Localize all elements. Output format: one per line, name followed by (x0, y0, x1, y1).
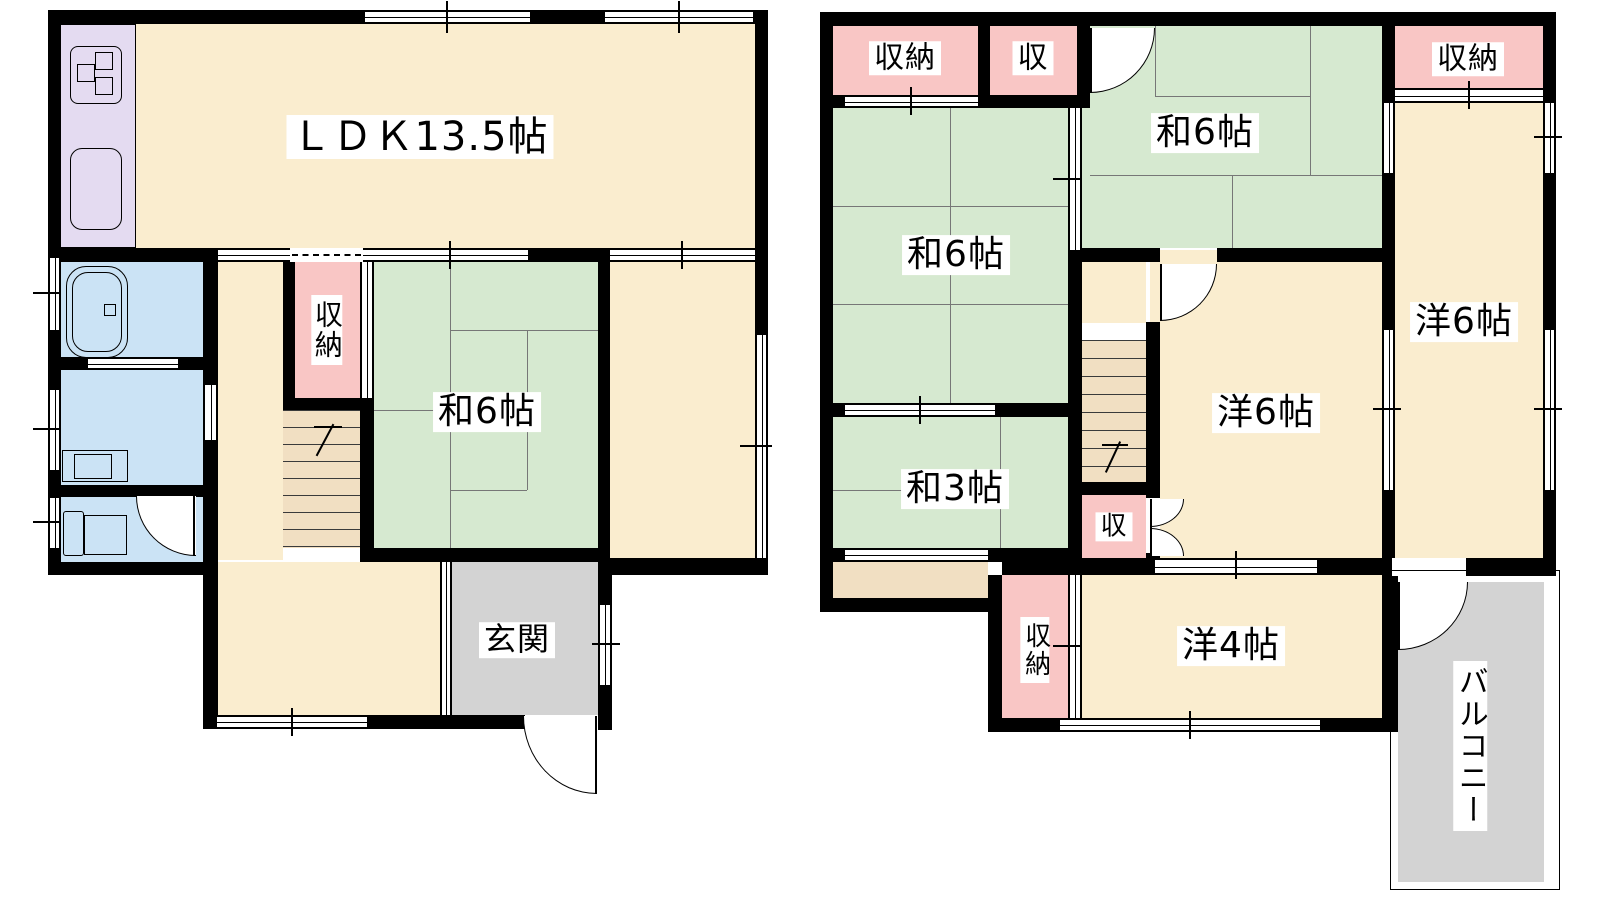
east-window-1 (1543, 103, 1556, 173)
floor-2-tick-4 (1534, 408, 1562, 410)
floor-2-tick-6 (919, 396, 921, 424)
floor-2-tick-11 (1160, 264, 1162, 321)
floor-2-wall-10 (1146, 248, 1160, 262)
toilet-bowl (84, 515, 127, 555)
closet-top-dashed-opening (290, 248, 363, 262)
floor-2-wall-4 (1077, 26, 1090, 95)
floor-2-wall-7 (1068, 250, 1082, 575)
floor-1-tick-6 (33, 292, 61, 294)
floor-2-wall-17 (833, 403, 845, 417)
floor-1-wall-12 (598, 248, 610, 575)
stairs-2f (1082, 340, 1146, 482)
bath-door (88, 357, 178, 370)
label-closet-2f-ne: 収納 (1432, 42, 1504, 76)
floor-2-wall-22 (1002, 562, 1082, 575)
wash-basin (74, 454, 112, 479)
floor-1-wall-9 (283, 248, 295, 403)
room-east-1f (610, 262, 755, 558)
floor-2-wall-23 (1082, 558, 1146, 575)
label-balcony: バルコニー (1453, 661, 1487, 831)
floor-2-wall-20 (820, 598, 1002, 612)
floor-2-tick-1 (1468, 81, 1470, 109)
floor-1-tick-2 (740, 445, 772, 447)
floor-1-tick-4 (681, 241, 683, 269)
center-window-1 (1382, 103, 1395, 173)
floor-1-tick-11 (595, 716, 597, 794)
label-washitsu-1f: 和6帖 (433, 392, 541, 432)
floor-1-wall-3 (48, 248, 218, 262)
hallway-vertical (218, 262, 283, 560)
floor-1-wall-11 (360, 410, 374, 548)
closet-door-1f (360, 262, 374, 398)
floor-1-wall-14 (360, 548, 610, 562)
floor-1-tick-7 (33, 428, 61, 430)
floor-2-tatami-line-3 (1090, 175, 1382, 176)
floor-2-tatami-line-4 (1232, 176, 1233, 248)
stove-burner-2 (95, 52, 113, 70)
floor-1-wall-8 (48, 562, 218, 575)
floor-2-wall-21 (988, 575, 1002, 732)
floor-2-tatami-line-2 (1310, 26, 1311, 176)
center-window-2 (1382, 330, 1395, 490)
floor-2-tick-7 (1235, 551, 1237, 579)
floor-1-tick-3 (449, 241, 451, 269)
floor-2-wall-6 (1382, 26, 1395, 103)
floor-2-wall-11 (1146, 322, 1160, 498)
floor-1-tick-0 (446, 1, 448, 33)
floor-1-tick-12 (314, 426, 342, 428)
stove-burner-1 (77, 64, 95, 82)
stove-burner-3 (95, 77, 113, 95)
floor-2-tatami-line-0 (1155, 26, 1156, 97)
floor-2-tick-12 (1150, 499, 1152, 556)
floor-1-wall-16 (203, 562, 218, 729)
floor-2-tick-2 (1053, 178, 1081, 180)
label-youshitsu-east: 洋6帖 (1410, 302, 1518, 342)
floor-2-tatami-line-6 (833, 206, 1068, 207)
floor-2-tick-8 (1189, 711, 1191, 739)
floor-1-tick-5 (291, 708, 293, 736)
left-window-toilet (48, 498, 61, 548)
floor-2-wall-2 (1543, 12, 1556, 576)
floor-1-tick-8 (33, 521, 61, 523)
floor-2-wall-19 (988, 548, 1068, 562)
slider-washitsu3-south (845, 548, 988, 562)
toilet-tank (63, 511, 84, 556)
floor-1-tick-9 (592, 643, 620, 645)
genkan-step-line (440, 562, 452, 715)
floor-2-tick-3 (1534, 136, 1562, 138)
corridor-2f (833, 562, 988, 598)
label-closet-1f: 収納 (311, 295, 342, 365)
floor-1-tatami-line-3 (450, 490, 527, 491)
label-genkan: 玄関 (479, 622, 555, 658)
label-closet-2f-n: 収 (1013, 41, 1054, 75)
genkan-window (598, 605, 612, 685)
floor-2-tick-0 (910, 87, 912, 115)
floor-2-wall-9 (1217, 248, 1382, 262)
floor-2-wall-14 (1382, 173, 1395, 330)
floor-2-wall-16 (995, 403, 1068, 417)
floor-2-tick-10 (1090, 28, 1092, 93)
label-youshitsu-center: 洋6帖 (1212, 393, 1320, 433)
floor-2-tatami-line-1 (1155, 96, 1310, 97)
slider-ldk-washitsu (363, 248, 528, 262)
label-washitsu-3: 和3帖 (901, 469, 1009, 509)
stairs-opening-1f (285, 548, 360, 562)
bathtub-drain (104, 304, 116, 316)
floorplan-canvas: ＬＤＫ13.5帖収納和6帖玄関収納収和6帖収納和6帖洋6帖洋6帖和3帖収収納洋4… (0, 0, 1600, 900)
hallway-bottom (218, 562, 440, 715)
label-washitsu-2f-w: 和6帖 (902, 235, 1010, 275)
floor-2-wall-18 (833, 548, 845, 562)
left-window-washroom (48, 390, 61, 470)
floor-2-wall-15 (1382, 490, 1395, 558)
floor-2-tick-13 (1398, 582, 1400, 650)
label-washitsu-2f-ne: 和6帖 (1151, 113, 1259, 153)
floor-2-tick-9 (1053, 645, 1081, 647)
stairs-1f (283, 410, 360, 548)
left-window-bath (48, 258, 61, 330)
floor-1-wall-13 (598, 558, 768, 575)
label-closet-2f-nw: 収納 (869, 41, 941, 75)
east-window-2 (1543, 330, 1556, 490)
floor-2-wall-13 (1082, 482, 1146, 495)
floor-2-wall-0 (820, 12, 1556, 26)
stairs-top-opening (1082, 323, 1146, 340)
floor-2-wall-1 (820, 12, 833, 612)
floor-1-tick-1 (678, 1, 680, 33)
floor-1-tick-10 (193, 496, 195, 556)
floor-1-wall-19 (598, 715, 612, 730)
floor-1-wall-18 (440, 715, 525, 729)
label-closet-2f-stairs: 収 (1095, 512, 1132, 541)
label-ldk: ＬＤＫ13.5帖 (286, 115, 553, 159)
floor-2-tick-5 (1373, 408, 1401, 410)
label-youshitsu-4: 洋4帖 (1177, 626, 1285, 666)
floor-2-wall-8 (1082, 248, 1150, 262)
floor-2-tatami-line-7 (833, 304, 1068, 305)
stairs-landing-2f (1082, 262, 1146, 323)
floor-2-tick-14 (1102, 444, 1128, 446)
floor-2-wall-3 (978, 26, 990, 95)
floor-1-tatami-line-1 (450, 330, 598, 331)
entrance-door-arc (523, 716, 597, 794)
hall-opening-ldk (218, 248, 290, 262)
floor-1-wall-10 (283, 398, 374, 410)
washroom-door (203, 385, 218, 440)
label-closet-2f-s: 収納 (1020, 617, 1049, 683)
kitchen-sink (70, 148, 122, 230)
